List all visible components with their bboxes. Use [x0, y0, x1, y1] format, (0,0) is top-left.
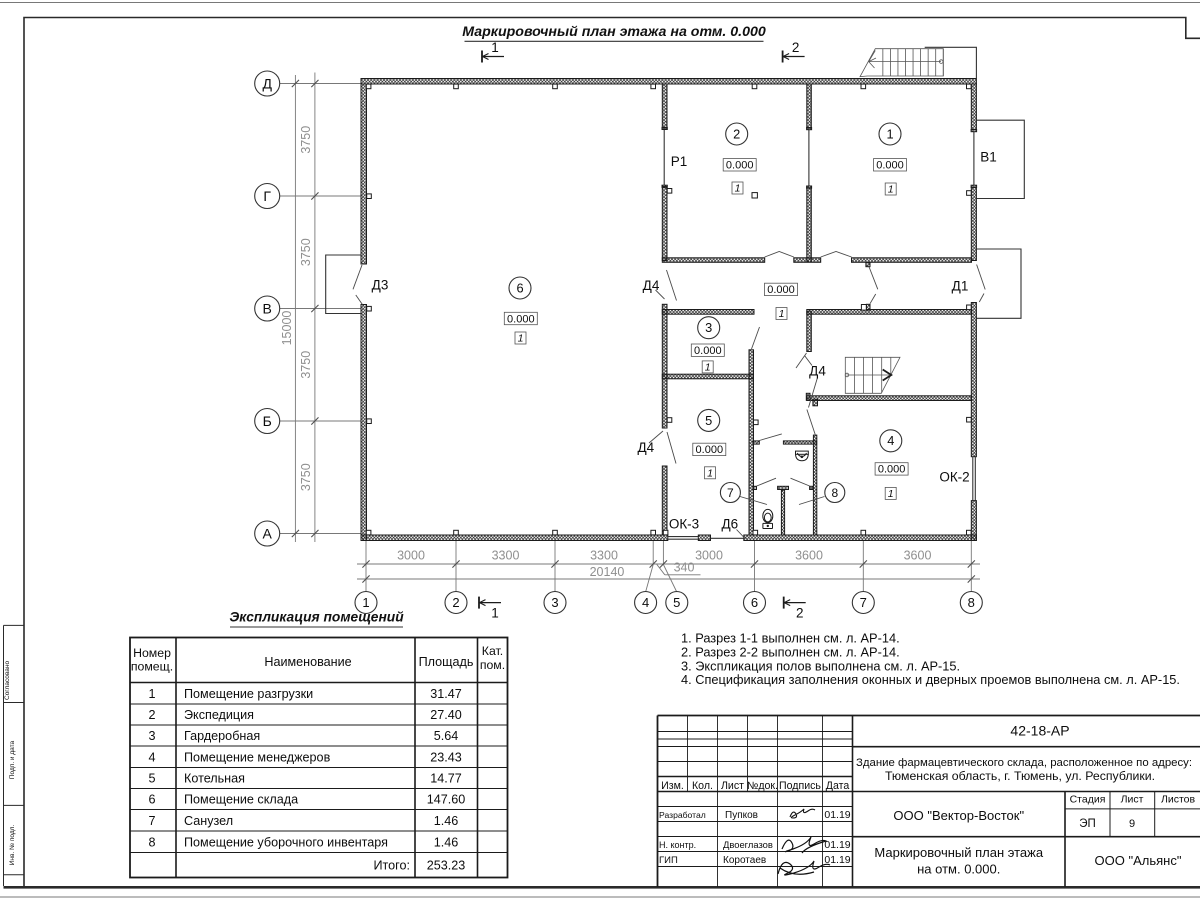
svg-text:Гардеробная: Гардеробная	[184, 729, 260, 743]
svg-text:Д4: Д4	[643, 278, 660, 293]
svg-text:1. Разрез 1-1 выполнен см. л.: 1. Разрез 1-1 выполнен см. л. АР-14.	[681, 631, 900, 646]
svg-text:27.40: 27.40	[430, 708, 462, 722]
svg-text:1: 1	[518, 333, 524, 345]
svg-text:Д3: Д3	[372, 278, 389, 293]
svg-text:3: 3	[705, 320, 712, 335]
svg-text:14.77: 14.77	[430, 772, 462, 786]
svg-text:1.46: 1.46	[434, 814, 459, 828]
svg-text:0.000: 0.000	[694, 345, 722, 357]
svg-text:Д: Д	[262, 76, 272, 92]
svg-text:01.19: 01.19	[824, 839, 850, 851]
svg-text:0.000: 0.000	[767, 284, 795, 296]
svg-text:Лист: Лист	[721, 780, 744, 792]
svg-text:340: 340	[674, 561, 695, 575]
svg-text:3750: 3750	[299, 463, 313, 491]
svg-text:2. Разрез 2-2 выполнен см. л.: 2. Разрез 2-2 выполнен см. л. АР-14.	[681, 644, 900, 659]
svg-text:8: 8	[831, 486, 838, 500]
svg-text:Санузел: Санузел	[184, 814, 233, 828]
svg-text:Подп. и дата: Подп. и дата	[9, 740, 16, 779]
svg-text:3. Экспликация полов выполнена: 3. Экспликация полов выполнена см. л. АР…	[681, 658, 960, 673]
svg-text:Итого:: Итого:	[373, 859, 410, 873]
svg-text:1: 1	[779, 308, 785, 320]
svg-text:ОК-3: ОК-3	[669, 517, 699, 532]
svg-text:9: 9	[1129, 818, 1135, 830]
svg-text:5: 5	[148, 772, 155, 786]
svg-text:Двоеглазов: Двоеглазов	[723, 839, 773, 850]
svg-text:Подпись: Подпись	[779, 780, 821, 792]
svg-text:1: 1	[888, 184, 894, 196]
svg-text:Кат.: Кат.	[482, 644, 503, 658]
svg-text:помещ.: помещ.	[131, 660, 173, 674]
svg-text:Пупков: Пупков	[725, 810, 758, 821]
svg-text:на отм. 0.000.: на отм. 0.000.	[917, 862, 1000, 877]
svg-text:0.000: 0.000	[507, 313, 535, 325]
svg-text:3600: 3600	[795, 549, 823, 563]
svg-text:3300: 3300	[590, 549, 618, 563]
svg-text:№док.: №док.	[747, 780, 778, 792]
svg-text:1: 1	[148, 687, 155, 701]
svg-text:Листов: Листов	[1161, 794, 1196, 806]
svg-text:1: 1	[707, 467, 713, 479]
svg-text:3750: 3750	[299, 238, 313, 266]
svg-text:Г: Г	[263, 188, 271, 204]
svg-text:Д4: Д4	[809, 364, 826, 379]
svg-text:42-18-АР: 42-18-АР	[1010, 723, 1069, 739]
svg-text:1: 1	[491, 606, 499, 621]
svg-text:В: В	[263, 301, 272, 317]
svg-text:Д6: Д6	[721, 517, 738, 532]
svg-text:1: 1	[362, 595, 369, 610]
svg-text:Согласовано: Согласовано	[4, 661, 11, 700]
svg-text:3: 3	[551, 595, 558, 610]
svg-text:20140: 20140	[590, 565, 625, 579]
svg-text:2: 2	[792, 40, 800, 55]
svg-text:7: 7	[727, 486, 734, 500]
svg-text:0.000: 0.000	[878, 464, 906, 476]
svg-text:1: 1	[886, 126, 893, 141]
svg-text:2: 2	[733, 126, 740, 141]
svg-text:Д1: Д1	[952, 279, 969, 294]
svg-text:1: 1	[888, 488, 894, 500]
svg-text:5: 5	[705, 413, 712, 428]
svg-text:15000: 15000	[280, 311, 294, 346]
svg-text:8: 8	[148, 835, 155, 849]
svg-text:Помещение разгрузки: Помещение разгрузки	[184, 687, 313, 701]
svg-text:Стадия: Стадия	[1070, 794, 1106, 806]
svg-text:3: 3	[148, 729, 155, 743]
svg-text:4: 4	[642, 595, 649, 610]
svg-text:8: 8	[968, 595, 975, 610]
svg-text:6: 6	[148, 793, 155, 807]
svg-text:ООО "Альянс": ООО "Альянс"	[1095, 853, 1182, 868]
svg-text:Площадь: Площадь	[419, 655, 474, 669]
svg-text:В1: В1	[980, 150, 997, 165]
svg-text:Коротаев: Коротаев	[723, 855, 766, 866]
svg-text:4: 4	[148, 750, 155, 764]
svg-text:ООО "Вектор-Восток": ООО "Вектор-Восток"	[893, 808, 1024, 823]
svg-text:Экспедиция: Экспедиция	[184, 708, 254, 722]
svg-text:Помещение уборочного инвентаря: Помещение уборочного инвентаря	[184, 835, 388, 849]
svg-text:7: 7	[860, 595, 867, 610]
svg-text:1: 1	[735, 183, 741, 195]
svg-text:2: 2	[452, 595, 459, 610]
svg-text:Изм.: Изм.	[661, 780, 684, 792]
svg-text:3600: 3600	[904, 549, 932, 563]
svg-text:ОК-2: ОК-2	[939, 470, 969, 485]
svg-text:ЭП: ЭП	[1079, 818, 1096, 830]
svg-text:3000: 3000	[695, 549, 723, 563]
svg-text:2: 2	[796, 606, 804, 621]
svg-text:147.60: 147.60	[427, 793, 466, 807]
svg-text:1: 1	[705, 362, 711, 374]
svg-text:Маркировочный план этажа: Маркировочный план этажа	[874, 845, 1043, 860]
svg-text:Номер: Номер	[133, 646, 171, 660]
svg-text:3300: 3300	[492, 549, 520, 563]
svg-text:0.000: 0.000	[726, 160, 754, 172]
svg-text:Экспликация помещений: Экспликация помещений	[229, 610, 404, 625]
svg-text:Маркировочный план этажа на от: Маркировочный план этажа на отм. 0.000	[462, 24, 766, 40]
svg-text:Наименование: Наименование	[264, 655, 351, 669]
svg-text:пом.: пом.	[480, 658, 505, 672]
svg-text:7: 7	[148, 814, 155, 828]
svg-text:6: 6	[751, 595, 758, 610]
svg-text:0.000: 0.000	[876, 160, 904, 172]
svg-text:Тюменская область, г. Тюмень,: Тюменская область, г. Тюмень, ул. Респуб…	[885, 769, 1155, 783]
svg-text:1: 1	[491, 40, 499, 55]
svg-text:1.46: 1.46	[434, 835, 459, 849]
svg-text:5.64: 5.64	[434, 729, 459, 743]
svg-text:Н. контр.: Н. контр.	[659, 840, 696, 850]
svg-text:4: 4	[887, 433, 894, 448]
svg-text:3000: 3000	[397, 549, 425, 563]
svg-text:Д4: Д4	[637, 440, 654, 455]
svg-text:253.23: 253.23	[427, 859, 466, 873]
svg-text:6: 6	[516, 280, 523, 295]
svg-text:Помещение склада: Помещение склада	[184, 793, 298, 807]
svg-text:Дата: Дата	[826, 780, 850, 792]
svg-text:2: 2	[148, 708, 155, 722]
svg-text:23.43: 23.43	[430, 750, 462, 764]
svg-text:3750: 3750	[299, 351, 313, 379]
svg-text:Помещение менеджеров: Помещение менеджеров	[184, 750, 331, 764]
svg-text:4. Спецификация заполнения око: 4. Спецификация заполнения оконных и две…	[681, 672, 1180, 687]
svg-text:Котельная: Котельная	[184, 772, 245, 786]
svg-text:Кол.: Кол.	[692, 780, 713, 792]
svg-text:А: А	[263, 526, 273, 542]
svg-text:Инв. № подл.: Инв. № подл.	[9, 825, 16, 866]
svg-text:Лист: Лист	[1121, 794, 1144, 806]
svg-text:Б: Б	[263, 413, 272, 429]
svg-text:Разработал: Разработал	[659, 810, 706, 820]
svg-text:01.19: 01.19	[824, 809, 850, 821]
svg-text:ГИП: ГИП	[659, 855, 678, 866]
svg-text:5: 5	[673, 595, 680, 610]
svg-text:3750: 3750	[299, 126, 313, 154]
svg-text:31.47: 31.47	[430, 687, 462, 701]
svg-text:Р1: Р1	[671, 154, 688, 169]
svg-text:0.000: 0.000	[696, 444, 724, 456]
svg-text:Здание фармацевтического склад: Здание фармацевтического склада, располо…	[856, 757, 1192, 769]
